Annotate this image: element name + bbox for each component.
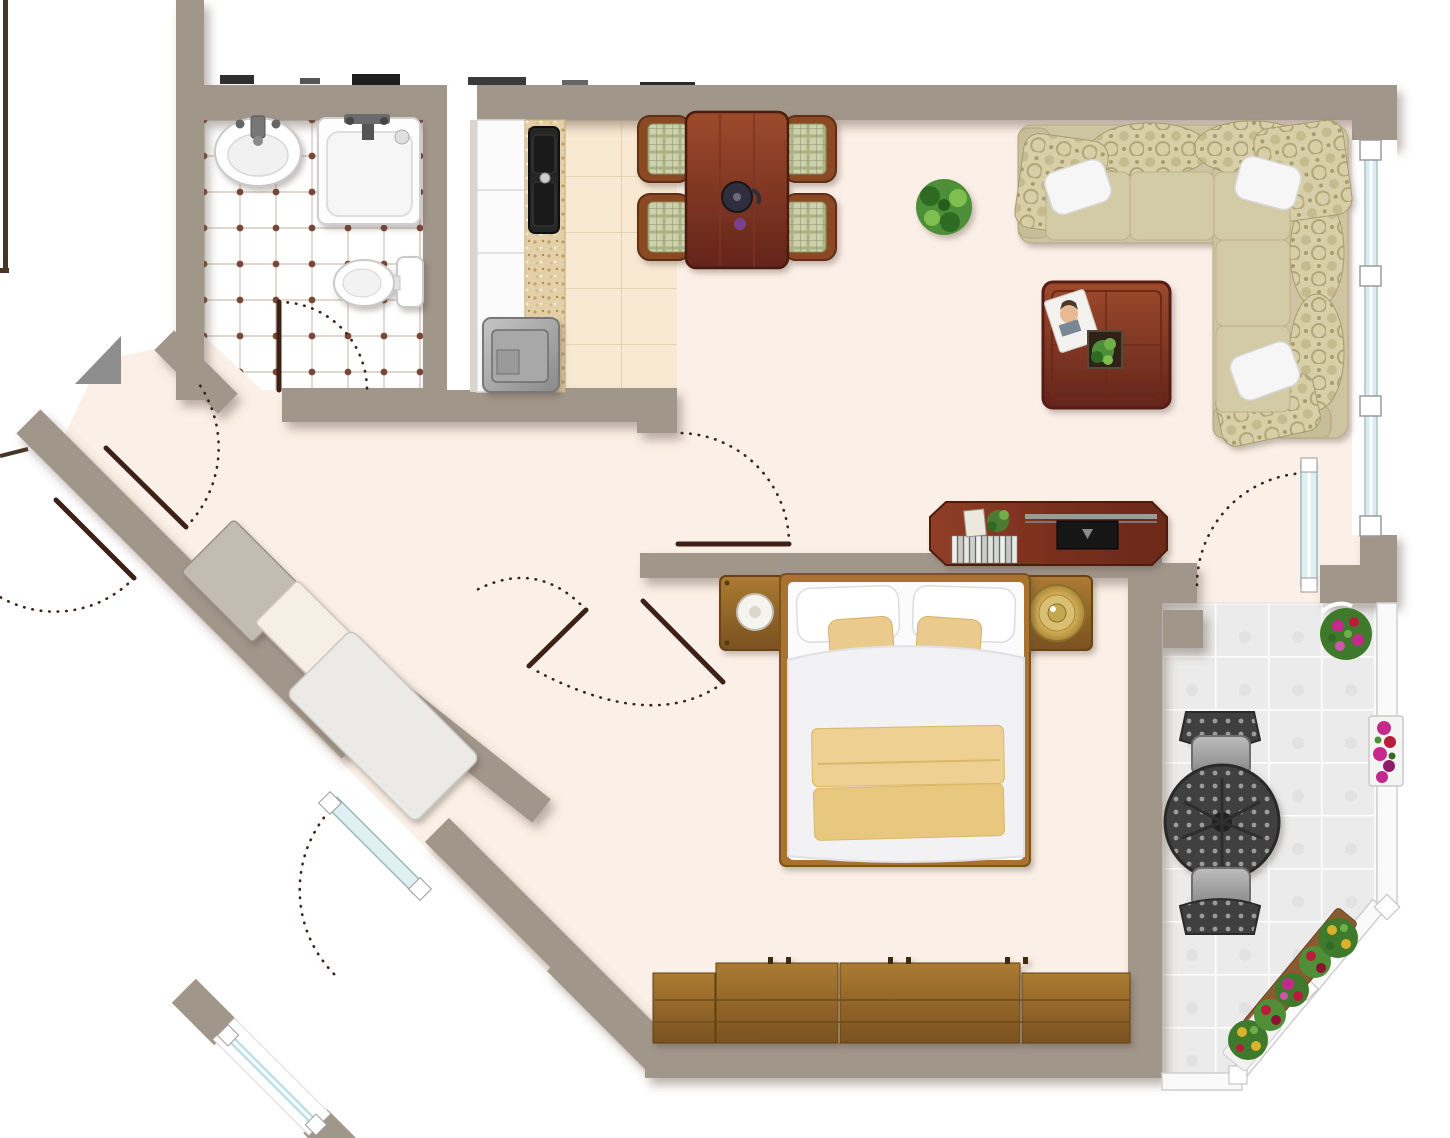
dining-chair[interactable] xyxy=(638,116,690,182)
books xyxy=(952,536,1017,563)
dining-chair[interactable] xyxy=(784,116,836,182)
potted-plant[interactable] xyxy=(916,179,972,235)
double-bed[interactable] xyxy=(780,574,1030,866)
dining-chair[interactable] xyxy=(638,194,690,260)
flower-planter[interactable] xyxy=(1369,716,1403,786)
sideboard-plant xyxy=(987,510,1009,532)
floor-plan-svg xyxy=(0,0,1450,1138)
sink-faucet-icon xyxy=(540,173,550,183)
bathtub[interactable] xyxy=(318,114,420,224)
round-bistro-table[interactable] xyxy=(1165,765,1279,879)
dining-table[interactable] xyxy=(686,112,788,268)
stove[interactable] xyxy=(483,318,559,392)
bistro-chair[interactable] xyxy=(1180,868,1260,934)
entry-arrow-icon xyxy=(75,336,121,384)
dining-chair[interactable] xyxy=(784,194,836,260)
drain-icon xyxy=(395,130,409,144)
kitchen-sink[interactable] xyxy=(529,127,559,233)
edge-wall-fragment xyxy=(3,0,8,270)
living-room-window[interactable] xyxy=(1352,140,1397,536)
kitchen xyxy=(447,85,565,392)
nightstand-right[interactable] xyxy=(1022,576,1092,650)
toilet[interactable] xyxy=(334,257,423,307)
blanket xyxy=(812,725,1005,840)
coffee-table[interactable] xyxy=(1043,282,1170,408)
tv[interactable] xyxy=(1057,521,1118,549)
picture-frame xyxy=(964,509,987,537)
tv-sideboard[interactable] xyxy=(930,502,1167,565)
gold-tray xyxy=(1029,585,1085,641)
hall-window-segment[interactable] xyxy=(172,979,377,1138)
floor-plan-stage xyxy=(0,0,1450,1138)
table-plant xyxy=(1088,331,1122,368)
wash-basin[interactable] xyxy=(215,116,301,186)
